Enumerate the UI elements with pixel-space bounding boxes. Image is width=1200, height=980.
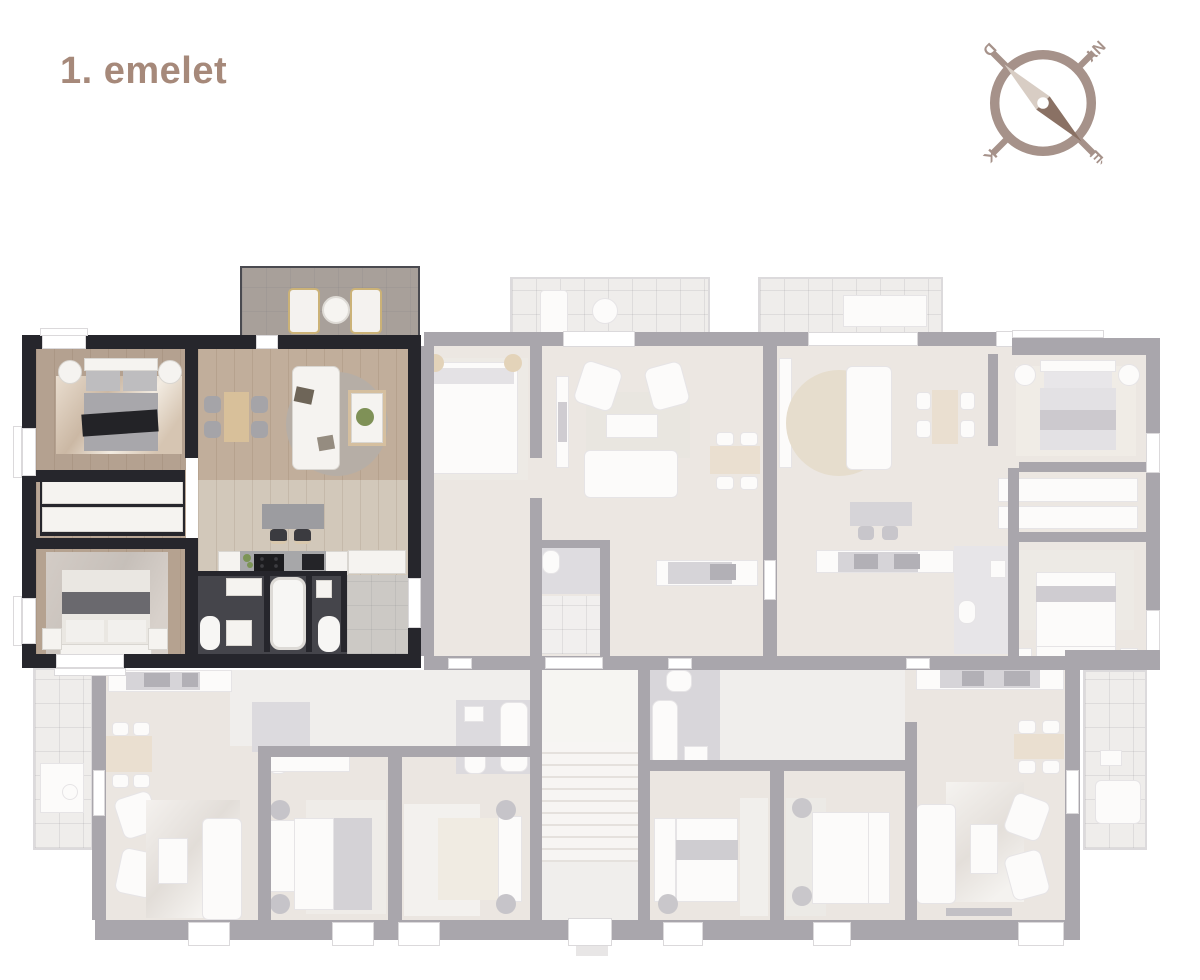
chair — [112, 722, 129, 736]
chair — [740, 476, 758, 490]
window — [1146, 433, 1160, 473]
dining-table — [1014, 734, 1064, 759]
window — [1146, 610, 1160, 652]
coffee-table — [970, 824, 998, 874]
wall — [36, 470, 185, 482]
bed-throw — [676, 840, 738, 860]
dining-table — [224, 392, 249, 442]
balcony-table — [592, 298, 618, 324]
wall — [264, 575, 270, 652]
wall — [388, 746, 402, 920]
nightstand — [1014, 364, 1036, 386]
toilet — [666, 670, 692, 692]
pouf — [496, 800, 516, 820]
bed — [1036, 572, 1116, 656]
chair — [1018, 760, 1036, 774]
window — [813, 922, 851, 946]
chair — [740, 432, 758, 446]
headboard — [498, 816, 522, 902]
wall — [185, 349, 198, 458]
wall — [185, 538, 198, 654]
dining-table — [710, 446, 760, 474]
sink — [302, 554, 324, 570]
cooktop — [254, 554, 284, 571]
chair — [112, 774, 129, 788]
window — [22, 598, 36, 644]
wall — [708, 332, 808, 346]
cooktop — [894, 554, 920, 569]
bed — [676, 818, 738, 902]
window — [808, 332, 918, 346]
headboard — [84, 358, 158, 371]
sofa — [916, 804, 956, 904]
headboard — [654, 818, 676, 902]
nightstand — [504, 354, 522, 372]
entry-cabinet — [348, 550, 406, 574]
window — [56, 654, 124, 668]
sink — [464, 706, 484, 722]
sink — [854, 554, 878, 569]
pillow — [434, 368, 514, 384]
wall — [421, 346, 434, 656]
stair-landing — [542, 668, 638, 742]
door-opening — [906, 658, 930, 669]
window — [1018, 922, 1064, 946]
tv — [558, 402, 567, 442]
plant — [243, 554, 251, 562]
bed-throw — [62, 592, 150, 614]
corridor-floor — [720, 666, 905, 760]
chair — [716, 476, 734, 490]
chair — [1018, 720, 1036, 734]
entry-floor — [347, 575, 408, 654]
sink — [182, 673, 198, 687]
pillow — [1044, 372, 1112, 388]
wall — [1008, 468, 1019, 656]
wall — [1019, 462, 1146, 472]
wall — [1012, 338, 1158, 355]
pouf — [658, 894, 678, 914]
coffee-table — [158, 838, 188, 884]
kitchen-island — [262, 504, 324, 529]
wall — [1019, 532, 1146, 542]
chair — [251, 421, 268, 438]
kitchen-island — [850, 502, 912, 526]
bed-throw — [334, 818, 372, 910]
window — [22, 428, 36, 476]
bed-throw — [1040, 410, 1116, 430]
toilet — [542, 550, 560, 574]
lounge-chair — [350, 288, 382, 334]
window — [398, 922, 440, 946]
plant — [356, 408, 374, 426]
balcony — [33, 668, 93, 850]
window-sill — [1012, 330, 1104, 338]
bed — [294, 818, 334, 910]
wall — [1080, 650, 1160, 666]
cooktop — [1004, 671, 1030, 686]
bar-stool — [858, 526, 874, 540]
nightstand — [148, 628, 168, 650]
chair — [133, 774, 150, 788]
wall — [600, 540, 610, 656]
chair — [251, 396, 268, 413]
sofa — [202, 818, 242, 920]
apartment-door — [408, 578, 421, 628]
door-opening — [545, 657, 603, 669]
headboard — [1040, 360, 1116, 372]
bathtub — [500, 702, 528, 772]
pouf — [792, 886, 812, 906]
wall — [530, 498, 542, 656]
cooktop — [144, 673, 170, 687]
door-opening — [764, 560, 776, 600]
chair — [916, 392, 931, 410]
wall — [258, 746, 271, 920]
window — [188, 922, 230, 946]
door-opening — [448, 658, 472, 669]
balcony-long-table — [843, 295, 927, 327]
wall — [341, 575, 347, 652]
nightstand — [58, 360, 82, 384]
wall — [530, 656, 542, 920]
door-opening — [668, 658, 692, 669]
nightstand — [42, 628, 62, 650]
window — [663, 922, 703, 946]
dining-table — [106, 736, 152, 772]
floor-plan — [0, 0, 1200, 980]
sink — [990, 560, 1006, 578]
window — [42, 335, 86, 349]
wall — [36, 538, 185, 549]
chair — [204, 396, 221, 413]
chair — [204, 421, 221, 438]
dining-table — [932, 390, 958, 444]
pillow — [317, 435, 335, 452]
door-opening — [93, 770, 105, 816]
rug — [740, 798, 768, 916]
window-sill — [13, 596, 22, 646]
entry-floor — [538, 596, 602, 654]
pillow — [66, 620, 104, 642]
bar-stool — [882, 526, 898, 540]
sink — [962, 671, 984, 686]
toilet — [318, 616, 340, 652]
pouf — [496, 894, 516, 914]
headboard — [270, 820, 296, 892]
pillow — [108, 620, 146, 642]
bed — [438, 818, 500, 900]
door-opening — [256, 335, 278, 349]
wall — [905, 722, 917, 920]
window-sill — [13, 426, 22, 478]
chair — [960, 420, 975, 438]
headboard — [868, 812, 890, 904]
window-sill — [40, 328, 88, 336]
chair — [716, 432, 734, 446]
wardrobe — [42, 507, 183, 532]
sink — [226, 578, 262, 596]
balcony-table — [1100, 750, 1122, 766]
chair — [916, 420, 931, 438]
plant — [247, 562, 253, 568]
wardrobe — [998, 478, 1138, 502]
stairs — [542, 742, 638, 862]
bed — [812, 812, 872, 904]
balcony-table — [322, 296, 350, 324]
tv-bench — [946, 908, 1012, 916]
bar-stool — [270, 529, 287, 544]
nightstand — [1118, 364, 1140, 386]
bar-stool — [294, 529, 311, 544]
window-sill — [54, 668, 126, 676]
washing-machine — [226, 620, 252, 646]
stair-landing — [542, 862, 638, 920]
sofa — [584, 450, 678, 498]
wardrobe — [998, 506, 1138, 529]
cooktop — [710, 564, 736, 580]
wall — [530, 346, 542, 458]
chair — [1042, 720, 1060, 734]
bathtub — [652, 700, 678, 766]
chair — [960, 392, 975, 410]
pouf — [270, 800, 290, 820]
sofa — [292, 366, 340, 470]
pillow — [123, 371, 157, 391]
wall — [770, 768, 784, 920]
sink — [316, 580, 332, 598]
wall — [763, 346, 777, 656]
wc-floor — [252, 702, 310, 752]
bathtub — [270, 577, 306, 650]
bed-throw — [1036, 586, 1116, 602]
pouf — [270, 894, 290, 914]
entrance-step — [576, 946, 608, 956]
nightstand — [158, 360, 182, 384]
wardrobe — [42, 480, 183, 504]
desk-chair — [62, 784, 78, 800]
wall — [638, 656, 650, 920]
pouf — [792, 798, 812, 818]
chair — [133, 722, 150, 736]
pillow — [86, 371, 120, 391]
toilet — [958, 600, 976, 624]
window — [563, 331, 635, 347]
sofa — [846, 366, 892, 470]
wall — [306, 575, 312, 652]
lounge-chair — [288, 288, 320, 334]
lounge-chair — [1095, 780, 1141, 824]
wall — [198, 571, 347, 576]
window — [332, 922, 374, 946]
chair — [1042, 760, 1060, 774]
coffee-table — [606, 414, 658, 438]
toilet — [200, 616, 220, 650]
entrance-door — [568, 918, 612, 946]
wall — [988, 354, 998, 446]
door-opening — [1066, 770, 1079, 814]
